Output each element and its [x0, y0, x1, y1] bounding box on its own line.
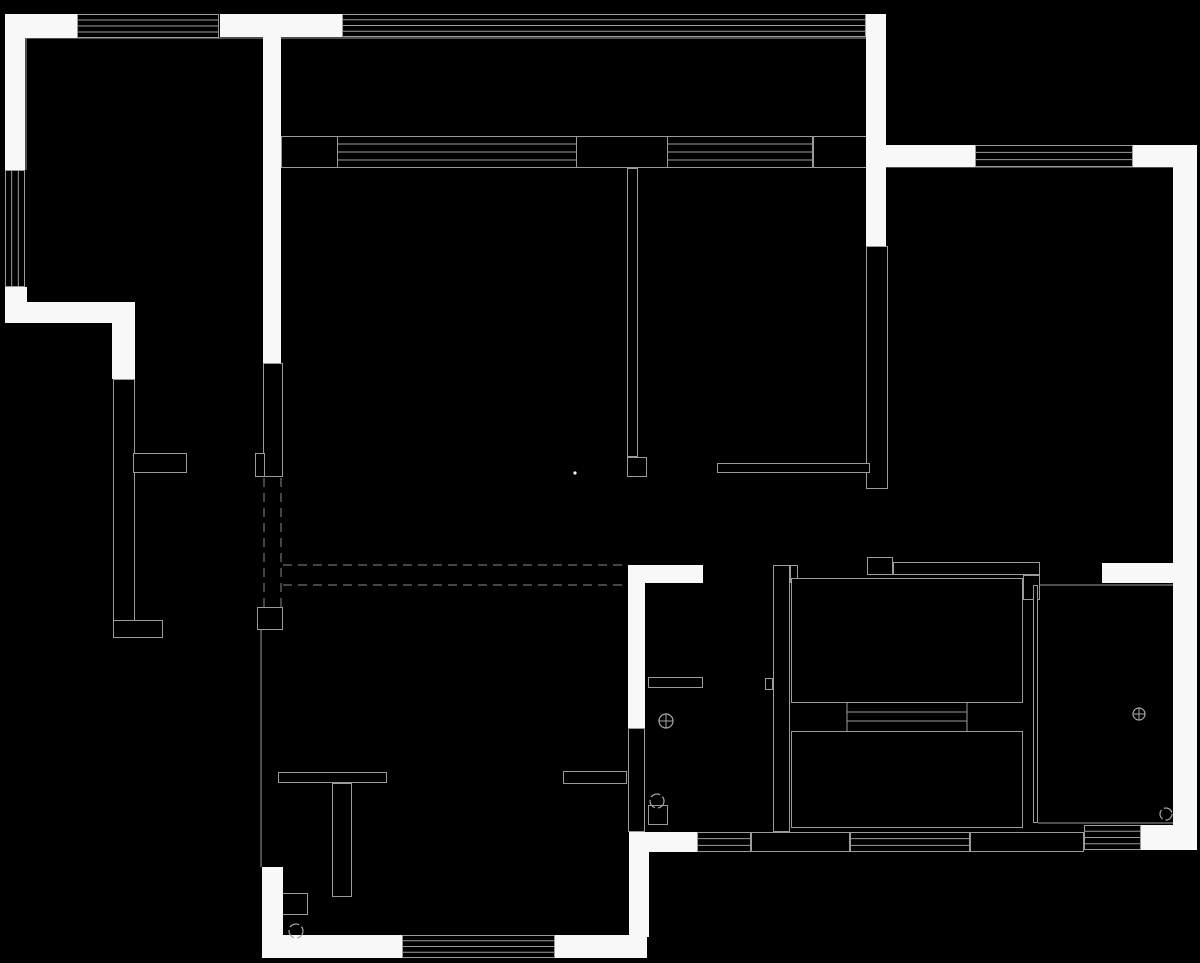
wall-outlined	[752, 833, 850, 852]
wall-solid	[628, 565, 645, 728]
wall-solid	[1102, 563, 1173, 583]
wall-solid	[220, 14, 342, 37]
wall-solid	[263, 35, 281, 363]
pipe-circle-icon	[1160, 808, 1172, 820]
wall-outlined	[792, 732, 1023, 828]
wall-outlined	[333, 784, 352, 897]
window-symbol	[6, 171, 25, 287]
window-symbol	[976, 146, 1133, 167]
wall-outlined	[766, 679, 773, 690]
window-symbol	[698, 833, 751, 852]
wall-solid	[112, 323, 135, 379]
wall-outlined	[628, 458, 647, 477]
wall-outlined	[564, 772, 627, 784]
wall-outlined	[792, 579, 1023, 703]
wall-outlined	[134, 454, 187, 473]
wall-outlined	[114, 621, 163, 638]
floor-plan-page	[0, 0, 1200, 963]
wall-solid	[555, 935, 647, 958]
wall-outlined	[264, 364, 283, 477]
wall-solid	[866, 14, 886, 246]
wall-solid	[262, 867, 283, 937]
wall-outlined	[894, 563, 1040, 575]
wall-outlined	[718, 464, 870, 473]
wall-outlined	[258, 608, 283, 630]
floor-plan-drawing	[0, 0, 1200, 963]
wall-outlined	[279, 773, 387, 783]
wall-outlined	[1034, 586, 1038, 823]
wall-outlined	[774, 566, 790, 832]
wall-outlined	[629, 729, 645, 832]
wall-outlined	[649, 678, 703, 688]
wall-outlined	[867, 247, 888, 489]
wall-solid	[629, 832, 649, 937]
wall-outlined	[628, 169, 638, 457]
wall-outlined	[868, 558, 893, 575]
wall-outlined	[256, 454, 265, 477]
wall-outlined	[814, 137, 868, 168]
reference-dot	[573, 471, 576, 474]
wall-solid	[886, 145, 975, 167]
wall-solid	[1173, 145, 1197, 850]
wall-solid	[5, 14, 25, 170]
wall-solid	[5, 302, 135, 323]
wall-solid	[1141, 825, 1197, 850]
wall-outlined	[114, 380, 135, 638]
wall-solid	[262, 935, 402, 958]
window-symbol	[851, 833, 970, 852]
wall-outlined	[971, 833, 1084, 852]
